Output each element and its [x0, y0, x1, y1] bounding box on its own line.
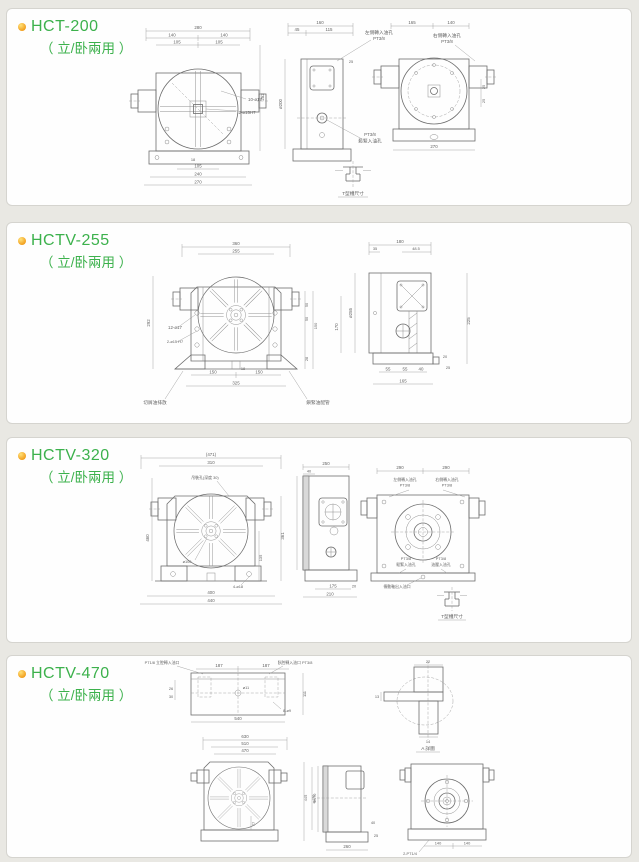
dim-label: 4-ø18 [233, 584, 243, 589]
model-subtitle: （ 立/卧兩用 ） [40, 466, 132, 486]
dim-label: 115 [326, 27, 334, 32]
dim-label: 10-ø17 [248, 97, 262, 102]
dim-label: 150 [313, 322, 318, 329]
dim-label: 8-ø9 [283, 708, 291, 713]
dim-label: 270 [430, 144, 438, 149]
model-title: HCTV-255 [31, 232, 132, 250]
annotation-oil-horizontal: 臥腔轉入油口 PT3/8 [278, 660, 313, 665]
dim-label: 630 [241, 734, 249, 739]
dim-label: ø11 [243, 685, 249, 690]
dim-label: 460 [145, 534, 150, 542]
dim-label: ø255 [348, 307, 353, 318]
annotation-thread: PT3/8 [436, 556, 446, 561]
front-view: 630 510 470 445 ø470 77 [191, 734, 317, 841]
dim-label: 255 [232, 249, 240, 254]
dim-label: 140 [464, 841, 471, 846]
dim-label: 187 [215, 663, 223, 668]
annotation-thread: 2-PT1/4 [403, 851, 418, 856]
dim-label: 2-ø15H7 [238, 110, 256, 115]
annotation-thread: PT3/8 [400, 483, 410, 488]
annotation-tslot: T型槽尺寸 [342, 190, 364, 197]
dim-label: 175 [329, 584, 337, 589]
side-view: 160 45 115 25 ø200 左側轉入油孔 PT3/8 PT3/8 鬆緊… [278, 20, 393, 197]
dim-label: 2-ø15 H7 [167, 339, 183, 344]
annotation-clamp: 鬆緊入油孔 [396, 562, 416, 567]
model-title: HCTV-470 [31, 665, 132, 683]
dim-label: 28 [304, 357, 309, 361]
panel-hct-200: HCT-200 （ 立/卧兩用 ） [6, 8, 632, 206]
bullet-icon [18, 237, 26, 245]
rear-view: 165 140 右側轉入油孔 PT3/8 270 25 25 [372, 20, 496, 150]
dim-label: 470 [241, 748, 249, 753]
dim-label: 26 [169, 686, 173, 691]
dim-label: 111 [302, 691, 307, 697]
model-subtitle: （ 立/卧兩用 ） [40, 37, 132, 57]
dim-label: 35 [373, 246, 377, 251]
dim-label: 77 [251, 822, 256, 826]
dim-label: 40 [371, 820, 376, 825]
dim-label: 250 [322, 461, 330, 466]
dim-label: 25 [481, 99, 486, 103]
front-view: (471) 310 吊裝孔(深度 30) 460 361 135 ø100 4-… [140, 452, 285, 604]
dim-label: 325 [232, 381, 240, 386]
dim-label: 180 [396, 239, 404, 244]
dim-label: ø470 [311, 794, 316, 804]
bullet-icon [18, 670, 26, 678]
model-title: HCTV-320 [31, 447, 132, 465]
dim-label: 440 [207, 598, 215, 603]
dim-label: 50 [304, 302, 309, 307]
annotation-thread: PT3/8 [441, 39, 453, 44]
dim-label: 280 [194, 25, 202, 30]
dim-label: 510 [241, 741, 249, 746]
dim-label: 170 [334, 323, 339, 331]
dim-label: 105 [173, 40, 181, 45]
annotation-oil-inlet-left: 左側轉入油孔 [365, 29, 393, 36]
dim-label: 445 [303, 795, 308, 802]
dim-label: 310 [207, 460, 215, 465]
annotation-thread: PT3/8 [373, 36, 385, 41]
dim-label: (471) [206, 452, 217, 457]
dim-label: 105 [194, 164, 202, 169]
dim-label: 150 [255, 370, 263, 375]
dim-label: 40 [419, 367, 424, 372]
title-block: HCTV-320 （ 立/卧兩用 ） [18, 447, 132, 486]
annotation-drive-shaft: 傳動軸出入油口 [383, 584, 410, 589]
dim-label: 270 [194, 180, 202, 185]
dim-label: 150 [209, 370, 217, 375]
dim-label: 400 [207, 590, 215, 595]
dim-label: 13 [375, 694, 379, 699]
dim-label: 187 [262, 663, 270, 668]
dim-label: 290 [396, 465, 404, 470]
annotation-hoist-hole: 吊裝孔(深度 30) [191, 475, 219, 480]
dim-label: 55 [403, 367, 408, 372]
dim-label: 18 [241, 366, 245, 371]
dim-label: 30 [169, 694, 174, 699]
dim-label: 540 [234, 716, 242, 721]
annotation-drain: 切屑油排放 [143, 399, 167, 406]
title-block: HCTV-255 （ 立/卧兩用 ） [18, 232, 132, 271]
model-subtitle: （ 立/卧兩用 ） [40, 251, 132, 271]
dim-label: 140 [447, 20, 455, 25]
annotation-thread: PT3/8 [442, 483, 452, 488]
dim-label: 25 [349, 59, 353, 64]
dim-label: ø200 [278, 98, 283, 109]
dim-label: 140 [435, 841, 442, 846]
side-view: ø470 40 25 260 [311, 766, 378, 850]
rear-view: 290 290 左側轉入油孔 PT3/8 右側轉入油孔 PT3/8 PT3/8 … [361, 465, 485, 620]
model-subtitle: （ 立/卧兩用 ） [40, 684, 132, 704]
dim-label: 25 [481, 85, 486, 89]
annotation-oil-vertical: PT1/8 立腔轉入油口 [145, 660, 180, 665]
dim-label: 55 [386, 367, 391, 372]
side-view: 180 35 48.5 ø255 170 225 55 55 40 165 20… [334, 239, 471, 384]
dim-label: 225 [466, 317, 471, 325]
dim-label: 135 [258, 555, 263, 562]
dim-label: 105 [215, 40, 223, 45]
annotation-hydraulic: 油壓入油孔 [431, 562, 451, 567]
side-view: 250 40 175 20 210 [297, 461, 357, 597]
annotation-thread: PT3/8 [364, 132, 376, 137]
model-title: HCT-200 [31, 18, 132, 36]
dim-label: 240 [194, 172, 202, 177]
annotation-oil-right: 右側轉入油孔 [435, 477, 458, 482]
dim-label: 20 [352, 584, 357, 589]
front-view: 280 140 140 105 105 252 10-ø17 2-ø15H7 1… [129, 25, 268, 185]
title-block: HCTV-470 （ 立/卧兩用 ） [18, 665, 132, 704]
annotation-detail-a: A 詳圖 [421, 745, 435, 752]
dim-label: 40 [307, 469, 312, 474]
dim-label: 48.5 [412, 246, 420, 251]
dim-label: 160 [316, 20, 324, 25]
a-detail-view: 22 13 14 A 詳圖 [375, 659, 453, 752]
dim-label: 14 [426, 739, 431, 744]
dim-label: 22 [426, 659, 430, 664]
annotation-clamp-pipe: 鎖緊油配管 [306, 399, 330, 406]
front-view: 360 255 292 12-ø17 2-ø15 H7 50 50 150 28… [143, 241, 330, 406]
bullet-icon [18, 23, 26, 31]
dim-label: 50 [304, 316, 309, 321]
dim-label: ø100 [183, 559, 193, 564]
dim-label: 20 [443, 354, 448, 359]
panel-hctv-320: HCTV-320 （ 立/卧兩用 ） (471) 310 [6, 437, 632, 643]
annotation-clamp-oil: 鬆緊入油孔 [358, 138, 382, 145]
dim-label: 12-ø17 [168, 325, 182, 330]
rear-view: 140 140 2-PT1/4 [400, 764, 494, 856]
annotation-thread: PT3/8 [401, 556, 411, 561]
panel-hctv-255: HCTV-255 （ 立/卧兩用 ） [6, 222, 632, 424]
dim-label: 140 [168, 33, 176, 38]
dim-label: 45 [295, 27, 300, 32]
dim-label: 210 [326, 592, 334, 597]
dim-label: 290 [442, 465, 450, 470]
dim-label: 361 [280, 532, 285, 540]
title-block: HCT-200 （ 立/卧兩用 ） [18, 18, 132, 57]
dim-label: 360 [232, 241, 240, 246]
annotation-oil-left: 左側轉入油孔 [393, 477, 416, 482]
dim-label: 18 [191, 157, 195, 162]
top-view: PT1/8 立腔轉入油口 臥腔轉入油口 PT3/8 187 187 26 30 … [145, 660, 313, 722]
dim-label: 140 [220, 33, 228, 38]
annotation-tslot: T型槽尺寸 [441, 613, 463, 620]
bullet-icon [18, 452, 26, 460]
dim-label: 165 [399, 379, 407, 384]
dim-label: 292 [146, 319, 151, 327]
dim-label: 165 [408, 20, 416, 25]
dim-label: 25 [446, 365, 450, 370]
dim-label: 25 [374, 833, 378, 838]
dim-label: 260 [343, 844, 351, 849]
panel-hctv-470: HCTV-470 （ 立/卧兩用 ） PT1/8 立腔轉入油口 臥腔轉入油口 P… [6, 655, 632, 858]
annotation-oil-inlet-right: 右側轉入油孔 [433, 32, 461, 39]
